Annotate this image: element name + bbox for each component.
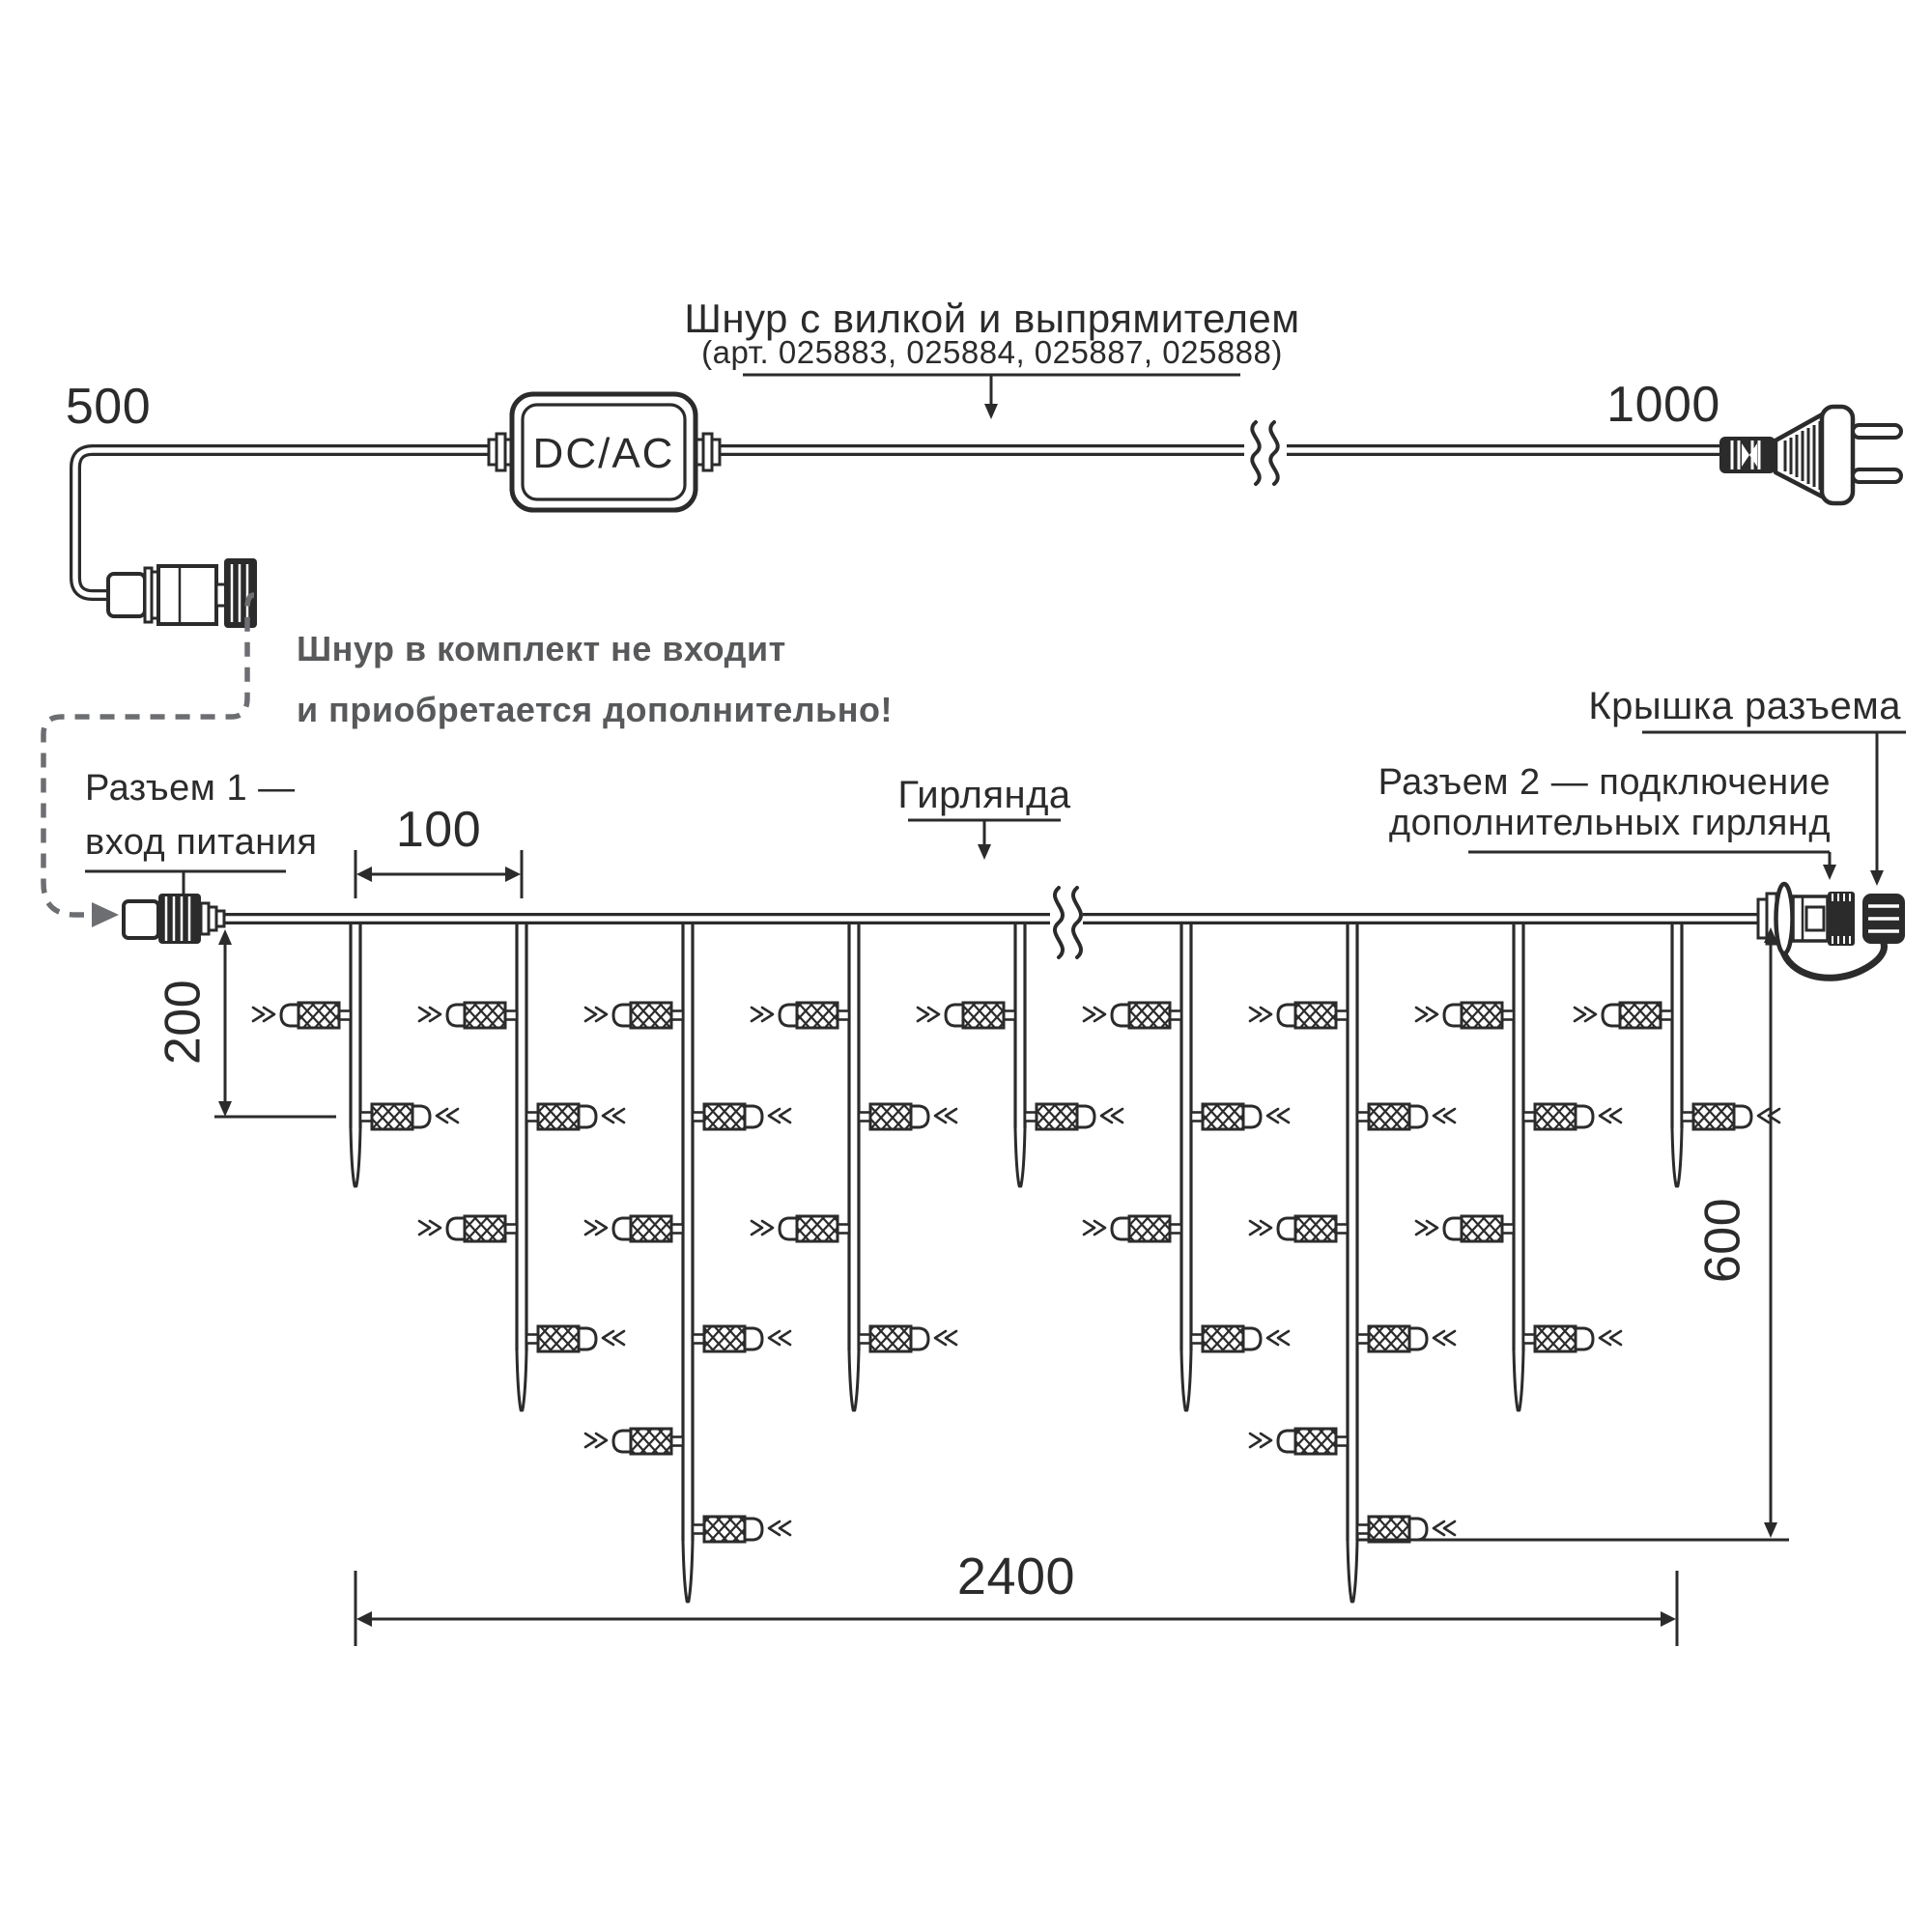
connector1-line1: Разъем 1 — xyxy=(85,768,296,809)
light-bulb xyxy=(419,1003,517,1028)
drop-tip xyxy=(1514,1350,1523,1410)
drop-tip xyxy=(517,1350,526,1410)
light-rays-icon xyxy=(585,1221,607,1235)
cord-output-connector xyxy=(108,558,257,628)
connector2-and-cap xyxy=(1758,884,1905,978)
drop-tip xyxy=(1672,1128,1682,1186)
light-bulb xyxy=(752,1216,849,1241)
icicle-drop xyxy=(1250,924,1455,1602)
icicle-drops-layer xyxy=(253,924,1779,1602)
light-rays-icon xyxy=(1267,1109,1289,1122)
garland-label: Гирлянда xyxy=(897,774,1071,860)
light-bulb xyxy=(585,1216,683,1241)
light-rays-icon xyxy=(769,1109,790,1122)
light-rays-icon xyxy=(1758,1109,1779,1122)
light-bulb xyxy=(752,1003,849,1028)
light-bulb xyxy=(1191,1326,1289,1351)
garland-label-text: Гирлянда xyxy=(897,774,1071,816)
light-rays-icon xyxy=(1416,1008,1437,1021)
dashed-arrow-icon xyxy=(92,902,119,927)
light-rays-icon xyxy=(437,1109,458,1122)
dim-2400-group: 2400 xyxy=(355,1548,1677,1646)
dim-1000: 1000 xyxy=(1606,377,1720,433)
mains-plug-icon xyxy=(1719,407,1901,503)
light-rays-icon xyxy=(1416,1221,1437,1235)
o-ring-icon xyxy=(1776,884,1793,953)
dim-100-group: 100 xyxy=(355,802,522,898)
icicle-drop xyxy=(585,924,790,1602)
light-rays-icon xyxy=(603,1331,624,1345)
light-rays-icon xyxy=(752,1221,773,1235)
light-rays-icon xyxy=(1101,1109,1122,1122)
light-rays-icon xyxy=(935,1109,956,1122)
light-bulb xyxy=(859,1326,956,1351)
connector1-label: Разъем 1 — вход питания xyxy=(85,768,318,910)
icicle-drop xyxy=(419,924,624,1410)
light-bulb xyxy=(693,1517,790,1542)
connector2-label: Разъем 2 — подключение дополнительных ги… xyxy=(1378,762,1836,880)
light-bulb xyxy=(585,1003,683,1028)
cap-strap xyxy=(1782,941,1884,978)
down-arrow-icon xyxy=(978,844,991,860)
dcac-converter-box: DC/AC xyxy=(489,394,720,510)
cord-note: Шнур в комплект не входит и приобретаетс… xyxy=(297,629,893,729)
light-bulb xyxy=(1575,1003,1672,1028)
light-bulb xyxy=(1682,1104,1779,1129)
note-line2: и приобретается дополнительно! xyxy=(297,690,893,729)
dim-600: 600 xyxy=(1695,1198,1751,1283)
light-rays-icon xyxy=(1250,1221,1271,1235)
plug-prong xyxy=(1853,469,1901,482)
connector1-power-input xyxy=(124,894,224,944)
light-rays-icon xyxy=(1084,1008,1105,1021)
light-rays-icon xyxy=(1575,1008,1596,1021)
light-bulb xyxy=(918,1003,1015,1028)
light-bulb xyxy=(253,1003,351,1028)
light-bulb xyxy=(1250,1429,1348,1454)
light-bulb xyxy=(526,1104,624,1129)
drop-tip xyxy=(683,1541,693,1602)
light-rays-icon xyxy=(1267,1331,1289,1345)
drop-tip xyxy=(1015,1128,1025,1186)
dcac-label: DC/AC xyxy=(533,430,675,477)
light-rays-icon xyxy=(603,1109,624,1122)
note-line1: Шнур в комплект не входит xyxy=(297,629,786,668)
light-bulb xyxy=(859,1104,956,1129)
plug-prong xyxy=(1853,425,1901,438)
drop-tip xyxy=(351,1128,360,1186)
light-rays-icon xyxy=(585,1008,607,1021)
dim-500: 500 xyxy=(66,379,151,435)
icicle-drop xyxy=(1575,924,1779,1186)
light-rays-icon xyxy=(752,1008,773,1021)
light-bulb xyxy=(1357,1326,1455,1351)
icicle-drop xyxy=(1084,924,1289,1410)
light-bulb xyxy=(1416,1003,1514,1028)
light-bulb xyxy=(693,1326,790,1351)
light-bulb xyxy=(1084,1003,1181,1028)
light-rays-icon xyxy=(419,1008,440,1021)
cord-break-icon xyxy=(1252,422,1278,484)
light-rays-icon xyxy=(253,1008,274,1021)
cap-label-text: Крышка разъема xyxy=(1588,685,1901,727)
light-rays-icon xyxy=(585,1434,607,1447)
light-bulb xyxy=(1025,1104,1122,1129)
light-rays-icon xyxy=(769,1521,790,1535)
down-arrow-icon xyxy=(984,404,998,419)
down-arrow-icon xyxy=(1823,865,1836,880)
light-bulb xyxy=(1250,1003,1348,1028)
light-bulb xyxy=(419,1216,517,1241)
dim-200: 200 xyxy=(156,980,212,1065)
light-bulb xyxy=(1357,1517,1455,1542)
light-rays-icon xyxy=(1600,1109,1621,1122)
light-bulb xyxy=(526,1326,624,1351)
light-rays-icon xyxy=(1434,1109,1455,1122)
down-arrow-icon xyxy=(1870,870,1884,886)
connector2-line1: Разъем 2 — подключение xyxy=(1378,762,1831,803)
light-bulb xyxy=(1523,1104,1621,1129)
light-rays-icon xyxy=(1250,1434,1271,1447)
drop-tip xyxy=(1181,1350,1191,1410)
light-bulb xyxy=(1523,1326,1621,1351)
icicle-drop xyxy=(918,924,1122,1186)
light-bulb xyxy=(693,1104,790,1129)
drop-tip xyxy=(849,1350,859,1410)
connector2-line2: дополнительных гирлянд xyxy=(1389,803,1831,843)
light-rays-icon xyxy=(1250,1008,1271,1021)
light-rays-icon xyxy=(419,1221,440,1235)
light-rays-icon xyxy=(1600,1331,1621,1345)
light-bulb xyxy=(1250,1216,1348,1241)
icicle-drop xyxy=(253,924,458,1186)
light-bulb xyxy=(1416,1216,1514,1241)
power-cord xyxy=(75,450,1723,595)
light-rays-icon xyxy=(1084,1221,1105,1235)
light-bulb xyxy=(1084,1216,1181,1241)
cord-title-label: Шнур с вилкой и выпрямителем (арт. 02588… xyxy=(684,296,1299,419)
light-rays-icon xyxy=(1434,1521,1455,1535)
light-bulb xyxy=(585,1429,683,1454)
light-bulb xyxy=(360,1104,458,1129)
optional-cord-dashed-path xyxy=(43,595,254,927)
light-rays-icon xyxy=(1434,1331,1455,1345)
dim-100: 100 xyxy=(396,802,481,858)
dim-2400: 2400 xyxy=(957,1548,1075,1605)
light-bulb xyxy=(1357,1104,1455,1129)
cord-title-line2: (арт. 025883, 025884, 025887, 025888) xyxy=(701,334,1283,370)
drop-tip xyxy=(1348,1541,1357,1602)
connector1-line2: вход питания xyxy=(85,822,318,863)
light-rays-icon xyxy=(918,1008,939,1021)
light-rays-icon xyxy=(935,1331,956,1345)
light-bulb xyxy=(1191,1104,1289,1129)
garland-break-icon xyxy=(1055,888,1081,957)
light-rays-icon xyxy=(769,1331,790,1345)
diagram-canvas: Шнур с вилкой и выпрямителем (арт. 02588… xyxy=(0,0,1932,1932)
